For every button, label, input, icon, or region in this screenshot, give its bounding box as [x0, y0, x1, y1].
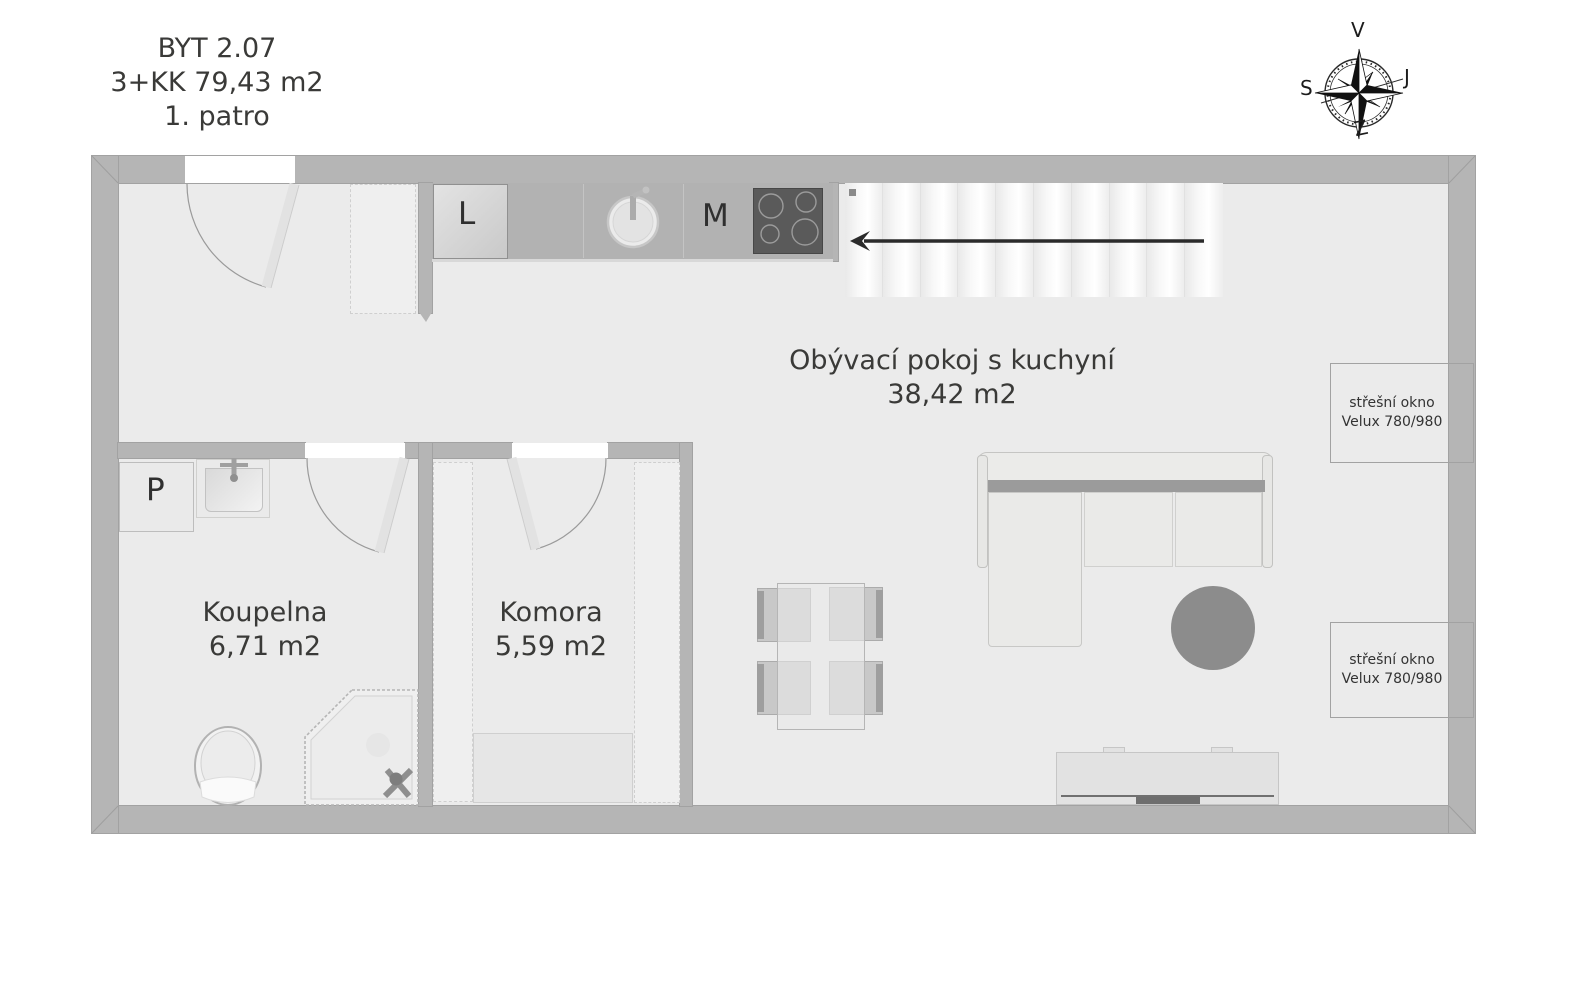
stair-step	[845, 183, 883, 297]
sofa-seat	[1175, 492, 1262, 567]
bathroom-door-opening	[305, 443, 405, 458]
stair-step	[958, 183, 996, 297]
counter-seam	[583, 184, 584, 258]
cooktop	[753, 188, 823, 254]
roof-window-1-model: Velux 780/980	[1331, 413, 1453, 432]
washing-machine-label: P	[146, 472, 165, 508]
wall-kitchen-stub	[419, 183, 432, 313]
wall-storage-north	[608, 443, 691, 458]
hallway-wardrobe	[350, 184, 416, 314]
chair-armrest	[757, 591, 764, 639]
stair-step	[921, 183, 959, 297]
wall-right	[1449, 156, 1475, 833]
plan-title: BYT 2.07 3+KK 79,43 m2 1. patro	[97, 32, 337, 134]
wall-bottom	[92, 806, 1475, 833]
stair-step	[1034, 183, 1072, 297]
bathroom-name: Koupelna	[145, 596, 385, 630]
storage-label: Komora 5,59 m2	[431, 596, 671, 664]
apartment-id: BYT 2.07	[97, 32, 337, 66]
sofa-back-stripe	[988, 480, 1265, 492]
apartment-floor: 1. patro	[97, 100, 337, 134]
bathroom-sink-cabinet	[196, 459, 270, 518]
stair-step	[996, 183, 1034, 297]
bathroom-area: 6,71 m2	[145, 630, 385, 664]
roof-window-2-model: Velux 780/980	[1331, 670, 1453, 689]
roof-window-2: střešní okno Velux 780/980	[1330, 622, 1474, 718]
stair-marker	[849, 189, 856, 196]
appliance-label: M	[702, 198, 729, 234]
living-room-area: 38,42 m2	[752, 378, 1152, 412]
roof-window-2-type: střešní okno	[1331, 651, 1453, 670]
dining-table	[777, 583, 865, 730]
chair-armrest	[876, 664, 883, 712]
round-rug	[1171, 586, 1255, 670]
living-room-label: Obývací pokoj s kuchyní 38,42 m2	[752, 344, 1152, 412]
floor-plan: BYT 2.07 3+KK 79,43 m2 1. patro V J Z S	[0, 0, 1574, 986]
roof-window-1-type: střešní okno	[1331, 394, 1453, 413]
chair-armrest	[876, 590, 883, 638]
stair-step	[1110, 183, 1148, 297]
bathroom-sink-basin	[205, 468, 263, 512]
storage-door-opening	[512, 443, 608, 458]
wall-kitchen-stub-tip	[419, 312, 432, 322]
compass-top-label: V	[1351, 18, 1365, 42]
stair-step	[1147, 183, 1185, 297]
wall-left	[92, 156, 118, 833]
storage-name: Komora	[431, 596, 671, 630]
entry-door-opening	[185, 156, 295, 183]
counter-seam	[683, 184, 684, 258]
compass-left-label: S	[1300, 76, 1313, 100]
compass-right-label: J	[1404, 65, 1410, 89]
tv-sideboard	[1056, 752, 1279, 805]
tv-unit	[1136, 797, 1200, 804]
roof-window-1: střešní okno Velux 780/980	[1330, 363, 1474, 463]
stair-step	[883, 183, 921, 297]
storage-shelf-bottom	[473, 733, 633, 803]
sofa-back	[977, 452, 1273, 481]
apartment-layout-area: 3+KK 79,43 m2	[97, 66, 337, 100]
chair-armrest	[757, 664, 764, 712]
stair-step	[1185, 183, 1223, 297]
living-room-name: Obývací pokoj s kuchyní	[752, 344, 1152, 378]
sofa-seat	[1084, 492, 1173, 567]
wall-storage-east	[680, 443, 692, 806]
sofa-chaise	[988, 492, 1082, 647]
sofa-armrest-left	[977, 455, 988, 568]
wall-top	[92, 156, 1475, 183]
sofa-armrest-right	[1262, 455, 1273, 568]
stair-step	[1072, 183, 1110, 297]
staircase	[845, 183, 1223, 297]
wall-bathroom-north-1	[118, 443, 305, 458]
bathroom-label: Koupelna 6,71 m2	[145, 596, 385, 664]
compass: V J Z S	[1296, 8, 1426, 148]
fridge-label: L	[458, 196, 475, 232]
storage-area: 5,59 m2	[431, 630, 671, 664]
